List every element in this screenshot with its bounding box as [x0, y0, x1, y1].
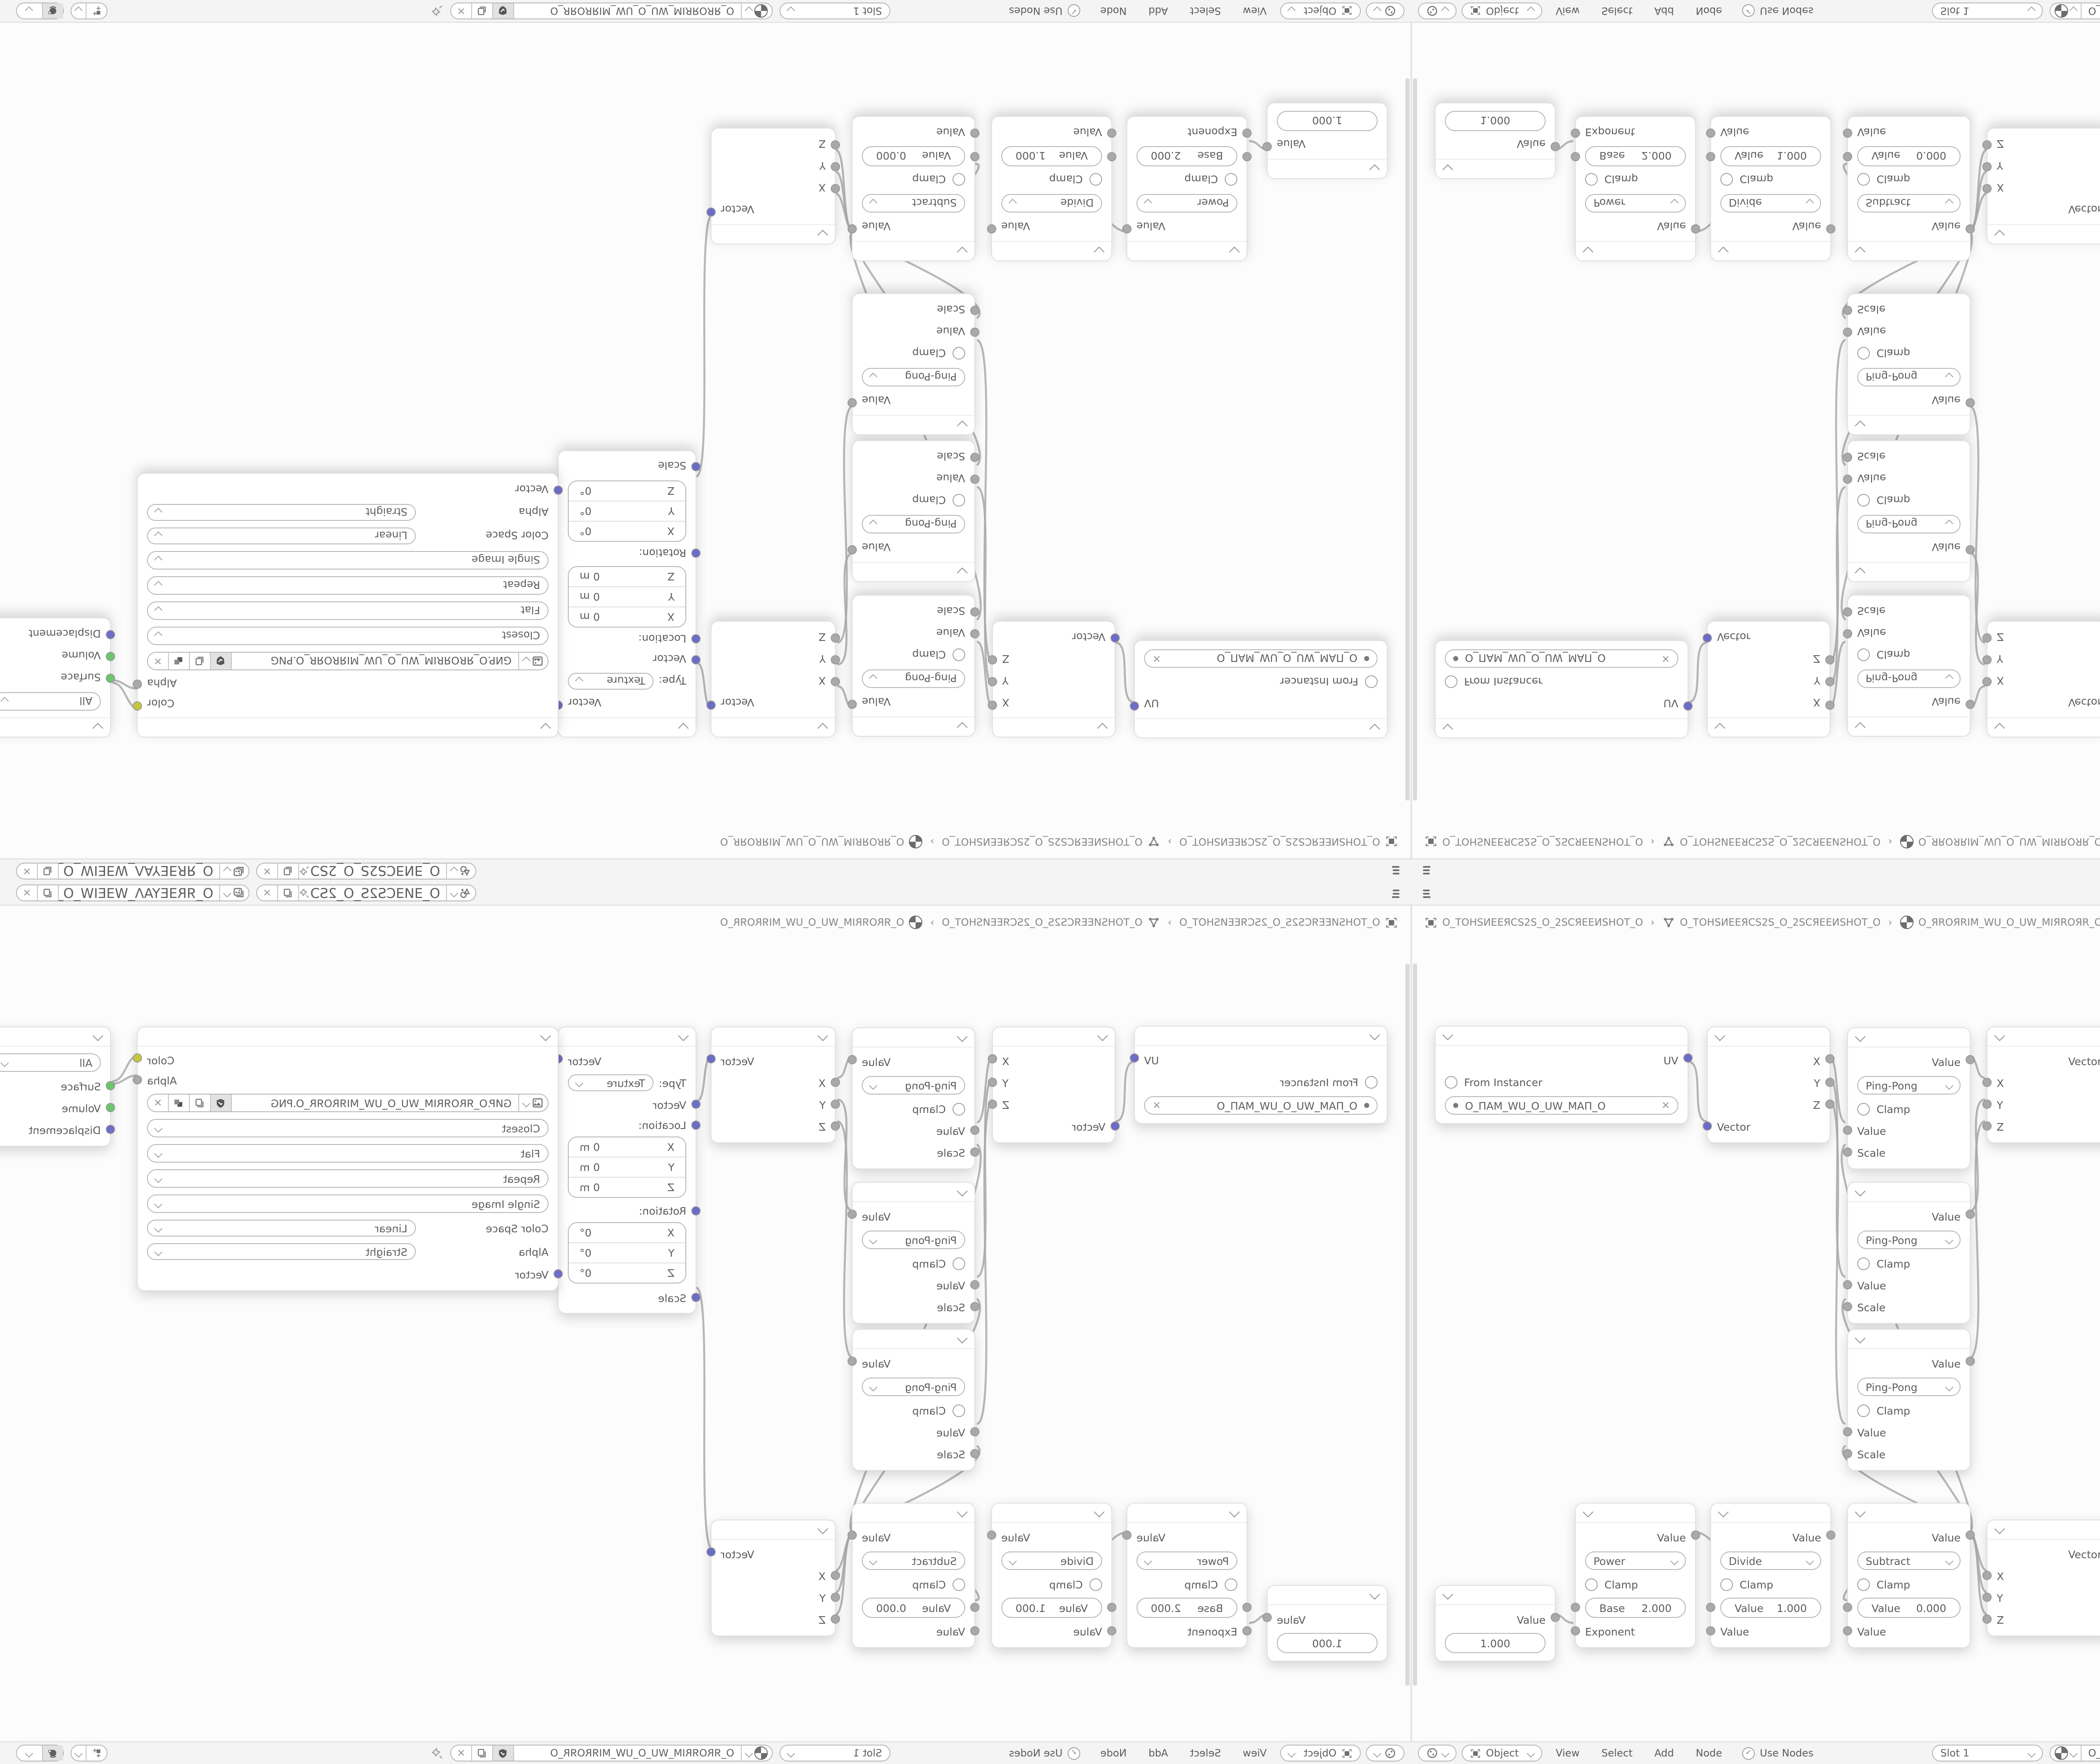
operation-dropdown[interactable]: Ping-Pong: [862, 368, 965, 386]
node-math-pingpong-1[interactable]: Value Ping-Pong Clamp Value Scale: [1847, 595, 1971, 737]
node-header[interactable]: [1436, 159, 1555, 178]
menu-select[interactable]: Select: [1593, 5, 1641, 17]
fake-user-shield-icon[interactable]: [211, 1095, 232, 1111]
collapse-chevron-icon[interactable]: [1583, 247, 1593, 257]
operation-dropdown[interactable]: Ping-Pong: [1857, 515, 1961, 533]
material-datablock[interactable]: O_ЯROЯRIM_WU_O_UW_MIЯROЯR_O ✕: [2050, 1745, 2100, 1761]
slot-dropdown[interactable]: Slot 1: [1932, 3, 2043, 19]
z-input-socket[interactable]: [831, 1121, 840, 1131]
operation-dropdown[interactable]: Ping-Pong: [862, 1231, 965, 1249]
rotation-y-field[interactable]: Y0°: [569, 501, 685, 522]
node-header[interactable]: [1987, 224, 2100, 244]
menu-select[interactable]: Select: [1593, 1747, 1641, 1759]
node-header[interactable]: [1127, 1504, 1247, 1523]
unpack-icon[interactable]: [169, 1095, 190, 1111]
value-input-socket[interactable]: [1843, 152, 1852, 161]
value-output-socket[interactable]: [1551, 142, 1560, 151]
interpolation-dropdown[interactable]: Closest: [147, 627, 549, 645]
clear-icon[interactable]: ✕: [1152, 653, 1161, 664]
surface-input-socket[interactable]: [106, 1081, 115, 1090]
projection-dropdown[interactable]: Flat: [147, 1144, 549, 1163]
y-output-socket[interactable]: [988, 677, 997, 686]
value-field[interactable]: Value1.000: [1720, 146, 1821, 166]
scale-input-socket[interactable]: [970, 607, 979, 617]
x-output-socket[interactable]: [1825, 701, 1835, 710]
collapse-chevron-icon[interactable]: [1442, 1588, 1453, 1599]
scale-input-socket[interactable]: [1843, 453, 1852, 462]
scale-input-socket[interactable]: [1843, 607, 1852, 617]
location-y-field[interactable]: Y0 m: [569, 1157, 685, 1177]
vector-output-socket[interactable]: [706, 1547, 716, 1557]
collapse-chevron-icon[interactable]: [1229, 1506, 1239, 1517]
value2-input-socket[interactable]: [1706, 129, 1715, 138]
z-input-socket[interactable]: [831, 140, 840, 150]
collapse-chevron-icon[interactable]: [1097, 723, 1108, 734]
y-output-socket[interactable]: [988, 1078, 997, 1087]
image-icon[interactable]: [518, 1095, 548, 1111]
collapse-chevron-icon[interactable]: [1369, 165, 1380, 175]
target-dropdown[interactable]: All: [0, 1053, 101, 1072]
snapping-widget[interactable]: [71, 3, 108, 19]
location-x-field[interactable]: X0 m: [569, 1137, 685, 1157]
use-nodes-toggle[interactable]: ✓ Use Nodes: [1009, 5, 1080, 17]
z-input-socket[interactable]: [1982, 1121, 1992, 1131]
x-input-socket[interactable]: [831, 1571, 840, 1580]
menu-add[interactable]: Add: [1140, 5, 1176, 17]
exponent-input-socket[interactable]: [1242, 129, 1252, 138]
breadcrumb-scene[interactable]: O_TOHSИEEЯCS2S_O_2SCЯEEИSHOT_O: [1179, 835, 1398, 848]
node-uv-map[interactable]: UV From Instancer O_ПAM_WU_O_UW_MAП_O✕: [1134, 1026, 1388, 1124]
value-input-socket[interactable]: [970, 475, 979, 484]
collapse-chevron-icon[interactable]: [92, 1030, 103, 1040]
node-value[interactable]: Value 1.000: [1267, 102, 1388, 179]
value-field[interactable]: Value1.000: [1720, 1598, 1821, 1618]
color-output-socket[interactable]: [133, 1053, 142, 1063]
collapse-chevron-icon[interactable]: [957, 247, 967, 257]
value-output-socket[interactable]: [848, 1055, 857, 1064]
scale-input-socket[interactable]: [970, 306, 979, 315]
node-header[interactable]: [853, 1504, 974, 1523]
rotation-input-socket[interactable]: [691, 1206, 701, 1215]
node-math-subtract[interactable]: Value Subtract Clamp Value0.000 Value: [1847, 1503, 1971, 1648]
clear-icon[interactable]: ✕: [1662, 1100, 1670, 1111]
base-input-socket[interactable]: [1242, 152, 1252, 161]
scene-name[interactable]: O_ƎИƎCS2S_O_2SƆƎИ...: [310, 863, 446, 879]
color-output-socket[interactable]: [133, 701, 142, 711]
x-input-socket[interactable]: [831, 184, 840, 193]
vector-input-socket[interactable]: [691, 1100, 701, 1109]
scene-icon[interactable]: [446, 864, 475, 879]
collapse-chevron-icon[interactable]: [678, 723, 688, 734]
node-header[interactable]: [993, 1027, 1115, 1047]
exponent-input-socket[interactable]: [1571, 1626, 1580, 1635]
breadcrumb-nodetree[interactable]: O_TOHSИEEЯCS2S_O_2SCЯEEИSHOT_O: [942, 835, 1160, 848]
scale-input-socket[interactable]: [970, 453, 979, 462]
scene-name[interactable]: O_ƎИƎCS2S_O_2SƆƎИ...: [310, 885, 446, 901]
value-field[interactable]: Value0.000: [862, 146, 965, 166]
value-output-socket[interactable]: [987, 1530, 996, 1540]
node-combine-xyz[interactable]: Vector X Y Z: [711, 1026, 836, 1143]
operation-dropdown[interactable]: Ping-Pong: [1857, 669, 1961, 688]
node-value[interactable]: Value 1.000: [1267, 1585, 1388, 1662]
collapse-chevron-icon[interactable]: [817, 723, 828, 734]
operation-dropdown[interactable]: Subtract: [1857, 1551, 1961, 1570]
clamp-checkbox[interactable]: [953, 494, 965, 507]
collapse-chevron-icon[interactable]: [1442, 165, 1453, 175]
node-math-pingpong-3[interactable]: Value Ping-Pong Clamp Value Scale: [852, 1329, 975, 1471]
overlay-widget[interactable]: [16, 1745, 64, 1761]
y-output-socket[interactable]: [1825, 1078, 1835, 1087]
value-input-socket[interactable]: [970, 1126, 979, 1135]
collapse-chevron-icon[interactable]: [1855, 1332, 1865, 1343]
value-input-socket[interactable]: [1843, 475, 1852, 484]
collapse-chevron-icon[interactable]: [1369, 1029, 1380, 1039]
x-input-socket[interactable]: [831, 1078, 840, 1087]
collapse-chevron-icon[interactable]: [1442, 1029, 1453, 1039]
collapse-chevron-icon[interactable]: [1855, 1506, 1865, 1517]
collapse-chevron-icon[interactable]: [1855, 247, 1865, 257]
from-instancer-checkbox[interactable]: [1365, 676, 1378, 688]
breadcrumb-material[interactable]: O_ЯROЯRIM_WU_O_UW_MIЯROЯR_O: [720, 916, 923, 929]
value-input-socket[interactable]: [1843, 328, 1852, 337]
node-math-power[interactable]: Value Power Clamp Base2.000 Exponent: [1575, 116, 1696, 261]
unlink-icon[interactable]: ✕: [451, 1746, 472, 1761]
node-material-output[interactable]: All Surface Volume Displacement: [0, 1026, 111, 1147]
vector-input-socket[interactable]: [1703, 1121, 1712, 1131]
node-combine-xyz-2[interactable]: Vector X Y Z: [1987, 128, 2100, 244]
x-output-socket[interactable]: [1825, 1054, 1835, 1063]
fake-user-shield-icon[interactable]: [211, 653, 232, 669]
node-value[interactable]: Value 1.000: [1435, 1585, 1556, 1662]
value-output-socket[interactable]: [1966, 1210, 1975, 1219]
rotation-z-field[interactable]: Z0°: [569, 481, 685, 501]
clamp-checkbox[interactable]: [953, 173, 965, 186]
node-header[interactable]: [0, 1027, 110, 1047]
scale-input-socket[interactable]: [970, 1147, 979, 1157]
x-input-socket[interactable]: [1982, 1078, 1992, 1087]
node-combine-xyz[interactable]: Vector X Y Z: [1987, 1026, 2100, 1143]
value-output-socket[interactable]: [1966, 224, 1975, 234]
operation-dropdown[interactable]: Divide: [1001, 194, 1102, 213]
unlink-icon[interactable]: ✕: [451, 3, 472, 18]
value-field[interactable]: Value1.000: [1001, 146, 1102, 166]
value-output-socket[interactable]: [1263, 1613, 1272, 1622]
unlink-icon[interactable]: ✕: [257, 885, 278, 900]
z-input-socket[interactable]: [1982, 1614, 1992, 1624]
y-input-socket[interactable]: [1982, 162, 1992, 171]
breadcrumb-material[interactable]: O_ЯROЯRIM_WU_O_UW_MIЯROЯR_O: [1900, 835, 2100, 848]
base-input-socket[interactable]: [1571, 152, 1580, 161]
copy-icon[interactable]: [190, 653, 211, 669]
node-uv-map[interactable]: UV From Instancer O_ПAM_WU_O_UW_MAП_O✕: [1435, 1026, 1688, 1124]
clamp-checkbox[interactable]: [1857, 347, 1870, 360]
value2-input-socket[interactable]: [1706, 1626, 1715, 1635]
operation-dropdown[interactable]: Divide: [1720, 194, 1821, 213]
menu-view[interactable]: View: [1547, 5, 1588, 17]
collapse-chevron-icon[interactable]: [1855, 421, 1865, 431]
location-z-field[interactable]: Z0 m: [569, 567, 685, 587]
vector-input-socket[interactable]: [554, 1269, 563, 1278]
operation-dropdown[interactable]: Power: [1585, 1551, 1686, 1570]
node-math-pingpong-1[interactable]: Value Ping-Pong Clamp Value Scale: [852, 595, 975, 737]
node-header[interactable]: [1848, 415, 1970, 434]
collapse-chevron-icon[interactable]: [540, 723, 551, 734]
value-output-socket[interactable]: [1966, 1357, 1975, 1366]
value-output-socket[interactable]: [848, 1530, 857, 1540]
remove-icon[interactable]: ✕: [17, 864, 38, 879]
collapse-chevron-icon[interactable]: [957, 1332, 967, 1343]
collapse-chevron-icon[interactable]: [1994, 723, 2005, 734]
vector-input-socket[interactable]: [1110, 1121, 1120, 1131]
value-output-socket[interactable]: [1691, 1530, 1700, 1540]
node-header[interactable]: [992, 1504, 1111, 1523]
node-header[interactable]: [1576, 241, 1695, 260]
node-math-power[interactable]: Value Power Clamp Base2.000 Exponent: [1126, 116, 1247, 261]
uv-map-dropdown[interactable]: O_ПAM_WU_O_UW_MAП_O✕: [1445, 649, 1678, 668]
rotation-y-field[interactable]: Y0°: [569, 1242, 685, 1263]
node-mapping[interactable]: Vector Type:Texture Vector Location: X0 …: [558, 1026, 696, 1314]
copy-icon[interactable]: [472, 3, 493, 18]
node-math-subtract[interactable]: Value Subtract Clamp Value0.000 Value: [1847, 116, 1971, 261]
y-input-socket[interactable]: [831, 1100, 840, 1109]
node-combine-xyz-2[interactable]: Vector X Y Z: [711, 1520, 836, 1636]
menu-add[interactable]: Add: [1140, 1747, 1176, 1759]
collapse-chevron-icon[interactable]: [1718, 247, 1728, 257]
operation-dropdown[interactable]: Ping-Pong: [862, 1378, 965, 1396]
node-math-power[interactable]: Value Power Clamp Base2.000 Exponent: [1126, 1503, 1247, 1648]
vector-input-socket[interactable]: [554, 486, 563, 495]
value-input-socket[interactable]: [970, 1603, 979, 1612]
clamp-checkbox[interactable]: [953, 347, 965, 360]
y-input-socket[interactable]: [1982, 1100, 1992, 1109]
node-header[interactable]: [853, 1028, 974, 1047]
image-datablock[interactable]: GИP.O_ЯROЯRIM_WU_O_UW_MIЯROЯR_O.PNG ✕: [147, 1094, 549, 1112]
shader-type-dropdown[interactable]: Object: [1462, 3, 1542, 19]
shader-type-dropdown[interactable]: Object: [1462, 1745, 1542, 1761]
breadcrumb-nodetree[interactable]: O_TOHSИEEЯCS2S_O_2SCЯEEИSHOT_O: [1662, 916, 1881, 929]
pin-icon[interactable]: [431, 1747, 444, 1759]
copy-icon[interactable]: [190, 1095, 211, 1111]
scene-selector[interactable]: O_ƎИƎCS2S_O_2SƆƎИ... ✕: [256, 863, 476, 879]
slot-dropdown[interactable]: Slot 1: [1932, 1745, 2043, 1761]
value-output-socket[interactable]: [848, 1210, 857, 1219]
clamp-checkbox[interactable]: [1720, 173, 1733, 186]
x-output-socket[interactable]: [988, 701, 997, 710]
node-header[interactable]: [1711, 241, 1830, 260]
use-nodes-toggle[interactable]: ✓ Use Nodes: [1742, 5, 1814, 17]
node-header[interactable]: [853, 562, 974, 581]
z-input-socket[interactable]: [831, 633, 840, 643]
collapse-chevron-icon[interactable]: [817, 1523, 828, 1533]
collapse-chevron-icon[interactable]: [92, 723, 103, 734]
new-copy-icon[interactable]: [278, 885, 299, 900]
node-math-pingpong-2[interactable]: Value Ping-Pong Clamp Value Scale: [852, 1182, 975, 1324]
color-space-dropdown[interactable]: Linear: [147, 1220, 416, 1236]
use-nodes-toggle[interactable]: ✓ Use Nodes: [1009, 1747, 1080, 1759]
collapse-chevron-icon[interactable]: [957, 722, 967, 733]
view-layer-name[interactable]: O_ЯRƎEYAΛ_WƎEIW_O_WIƎEW_ΛAYƎEЯR_O: [59, 863, 219, 879]
z-input-socket[interactable]: [1982, 140, 1992, 150]
y-input-socket[interactable]: [831, 655, 840, 664]
from-instancer-checkbox[interactable]: [1445, 676, 1457, 688]
new-copy-icon[interactable]: [38, 864, 59, 879]
chevron-down-icon[interactable]: [17, 1746, 42, 1761]
value-input-socket[interactable]: [1843, 629, 1852, 638]
collapse-chevron-icon[interactable]: [540, 1030, 551, 1040]
operation-dropdown[interactable]: Ping-Pong: [1857, 1378, 1961, 1396]
shader-type-dropdown[interactable]: Object: [1280, 1745, 1361, 1761]
value-field[interactable]: Value0.000: [1857, 1598, 1961, 1618]
collapse-chevron-icon[interactable]: [1855, 568, 1865, 578]
chevron-down-icon[interactable]: [71, 1746, 86, 1761]
node-header[interactable]: [1436, 1586, 1555, 1605]
node-header[interactable]: [1708, 1027, 1830, 1047]
clamp-checkbox[interactable]: [953, 649, 965, 661]
clear-icon[interactable]: ✕: [1152, 1100, 1161, 1111]
value-output-socket[interactable]: [1966, 398, 1975, 407]
collapse-chevron-icon[interactable]: [1094, 1506, 1104, 1517]
z-input-socket[interactable]: [831, 1614, 840, 1624]
location-z-field[interactable]: Z0 m: [569, 1177, 685, 1197]
value-input-socket[interactable]: [1706, 1603, 1715, 1612]
node-math-pingpong-2[interactable]: Value Ping-Pong Clamp Value Scale: [1847, 1182, 1971, 1324]
value-output-socket[interactable]: [848, 224, 857, 234]
fake-user-shield-icon[interactable]: [493, 3, 514, 18]
image-datablock[interactable]: GИP.O_ЯROЯRIM_WU_O_UW_MIЯROЯR_O.PNG ✕: [147, 652, 549, 670]
collapse-chevron-icon[interactable]: [957, 568, 967, 578]
operation-dropdown[interactable]: Subtract: [1857, 194, 1961, 213]
node-header[interactable]: [853, 415, 974, 434]
collapse-chevron-icon[interactable]: [1097, 1030, 1108, 1040]
scale-input-socket[interactable]: [1843, 306, 1852, 315]
node-header[interactable]: [1135, 718, 1387, 738]
alpha-output-socket[interactable]: [133, 680, 142, 689]
x-output-socket[interactable]: [988, 1054, 997, 1063]
rotation-x-field[interactable]: X0°: [569, 1223, 685, 1242]
base-field[interactable]: Base2.000: [1137, 1598, 1237, 1618]
node-combine-xyz[interactable]: Vector X Y Z: [711, 621, 836, 738]
rotation-x-field[interactable]: X0°: [569, 522, 685, 541]
unpack-icon[interactable]: [169, 653, 190, 669]
base-input-socket[interactable]: [1571, 1603, 1580, 1612]
menu-node[interactable]: Node: [1688, 1747, 1731, 1759]
uv-map-dropdown[interactable]: O_ПAM_WU_O_UW_MAП_O✕: [1445, 1096, 1678, 1115]
collapse-chevron-icon[interactable]: [1369, 1588, 1380, 1599]
collapse-chevron-icon[interactable]: [1369, 724, 1380, 735]
node-material-output[interactable]: All Surface Volume Displacement: [0, 617, 111, 738]
z-output-socket[interactable]: [1825, 655, 1835, 664]
node-header[interactable]: [711, 1520, 835, 1540]
collapse-chevron-icon[interactable]: [678, 1030, 688, 1040]
unlink-icon[interactable]: ✕: [148, 653, 169, 669]
value-output-socket[interactable]: [1122, 1530, 1131, 1540]
collapse-chevron-icon[interactable]: [1855, 1031, 1865, 1041]
operation-dropdown[interactable]: Ping-Pong: [1857, 368, 1961, 386]
alpha-output-socket[interactable]: [133, 1075, 142, 1084]
value-output-socket[interactable]: [1122, 224, 1131, 234]
value-output-socket[interactable]: [1826, 224, 1835, 234]
clamp-checkbox[interactable]: [1585, 1578, 1598, 1591]
value-field[interactable]: Value0.000: [862, 1598, 965, 1618]
scale-input-socket[interactable]: [691, 462, 701, 471]
value-output-socket[interactable]: [1966, 545, 1975, 554]
value-output-socket[interactable]: [1691, 224, 1700, 234]
menu-select[interactable]: Select: [1181, 1747, 1229, 1759]
node-header[interactable]: [1848, 1183, 1970, 1202]
base-field[interactable]: Base2.000: [1585, 146, 1686, 166]
node-header[interactable]: [1436, 1026, 1688, 1046]
node-header[interactable]: [1848, 562, 1970, 581]
overlay-widget[interactable]: [16, 3, 64, 19]
node-separate-xyz[interactable]: X Y Z Vector: [1707, 1026, 1830, 1143]
node-math-pingpong-3[interactable]: Value Ping-Pong Clamp Value Scale: [852, 293, 975, 435]
menu-hamburger-icon[interactable]: [1388, 864, 1401, 877]
node-header[interactable]: [1848, 717, 1970, 736]
scene-icon[interactable]: [446, 885, 475, 900]
view-layer-icon[interactable]: [219, 885, 249, 900]
value2-input-socket[interactable]: [1843, 1626, 1852, 1635]
chevron-down-icon[interactable]: [71, 3, 86, 18]
value-input-socket[interactable]: [970, 152, 979, 161]
node-editor-canvas[interactable]: O_TOHSИEEЯCS2S_O_2SCЯEEИSHOT_O › O_TOHSИ…: [0, 22, 1411, 859]
node-math-divide[interactable]: Value Divide Clamp Value1.000 Value: [1710, 1503, 1831, 1648]
view-layer-name[interactable]: O_ЯRƎEYAΛ_WƎEIW_O_WIƎEW_ΛAYƎEЯR_O: [59, 885, 219, 901]
node-header[interactable]: [853, 717, 974, 736]
node-math-pingpong-1[interactable]: Value Ping-Pong Clamp Value Scale: [852, 1027, 975, 1169]
node-separate-xyz[interactable]: X Y Z Vector: [1707, 621, 1830, 738]
displacement-input-socket[interactable]: [106, 630, 115, 639]
alpha-mode-dropdown[interactable]: Straight: [147, 504, 416, 521]
use-nodes-toggle[interactable]: ✓ Use Nodes: [1742, 1747, 1814, 1759]
node-header[interactable]: [559, 717, 696, 737]
menu-node[interactable]: Node: [1688, 5, 1731, 17]
node-math-subtract[interactable]: Value Subtract Clamp Value0.000 Value: [852, 116, 975, 261]
value-field[interactable]: Value0.000: [1857, 146, 1961, 166]
value-field[interactable]: Value1.000: [1001, 1598, 1102, 1618]
node-header[interactable]: [138, 717, 558, 737]
node-header[interactable]: [853, 1330, 974, 1349]
clamp-checkbox[interactable]: [1857, 494, 1870, 507]
menu-node[interactable]: Node: [1092, 1747, 1135, 1759]
base-field[interactable]: Base2.000: [1585, 1598, 1686, 1618]
editor-type-dropdown[interactable]: [1366, 1745, 1404, 1761]
collapse-chevron-icon[interactable]: [1094, 247, 1104, 257]
value-input-socket[interactable]: [1843, 1427, 1852, 1436]
scale-input-socket[interactable]: [970, 1449, 979, 1458]
node-combine-xyz[interactable]: Vector X Y Z: [1987, 621, 2100, 738]
node-header[interactable]: [1268, 1586, 1387, 1605]
node-math-pingpong-3[interactable]: Value Ping-Pong Clamp Value Scale: [1847, 293, 1971, 435]
value-field[interactable]: 1.000: [1277, 1633, 1378, 1653]
slot-dropdown[interactable]: Slot 1: [780, 3, 890, 19]
breadcrumb-nodetree[interactable]: O_TOHSИEEЯCS2S_O_2SCЯEEИSHOT_O: [942, 916, 1160, 929]
node-header[interactable]: [1127, 241, 1247, 260]
clamp-checkbox[interactable]: [1089, 1578, 1102, 1591]
node-uv-map[interactable]: UV From Instancer O_ПAM_WU_O_UW_MAП_O✕: [1134, 640, 1388, 738]
displacement-input-socket[interactable]: [106, 1125, 115, 1134]
collapse-chevron-icon[interactable]: [1855, 722, 1865, 733]
target-dropdown[interactable]: All: [0, 692, 101, 711]
uv-output-socket[interactable]: [1130, 1053, 1139, 1063]
collapse-chevron-icon[interactable]: [1718, 1506, 1728, 1517]
collapse-chevron-icon[interactable]: [957, 1185, 967, 1196]
clamp-checkbox[interactable]: [1585, 173, 1598, 186]
value-output-socket[interactable]: [1551, 1613, 1560, 1622]
value-output-socket[interactable]: [848, 1357, 857, 1366]
node-header[interactable]: [992, 241, 1111, 260]
clamp-checkbox[interactable]: [1857, 1404, 1870, 1417]
y-output-socket[interactable]: [1825, 677, 1835, 686]
